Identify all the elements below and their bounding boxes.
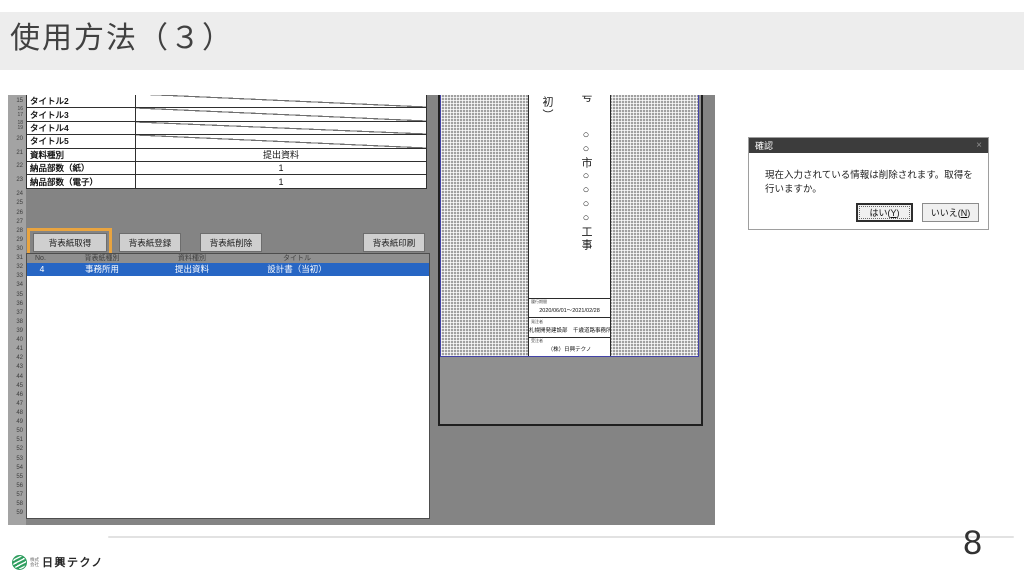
form-row: 資料種別提出資料 (27, 148, 426, 161)
spine-info-box: 受注者（株）日興テクノ (529, 337, 610, 357)
row-number: 25 (8, 199, 23, 208)
row-number: 27 (8, 218, 23, 227)
spine-info-box: 履行期間2020/06/01～2021/02/28 (529, 298, 610, 318)
form-row-label: タイトル4 (27, 122, 136, 134)
slide-title: 使用方法（３） (10, 13, 234, 57)
row-number: 46 (8, 391, 23, 400)
form-row-label: 資料種別 (27, 149, 136, 161)
row-number: 37 (8, 309, 23, 318)
form-row: タイトル4 (27, 121, 426, 134)
row-number: 45 (8, 382, 23, 391)
spine-button-3[interactable]: 背表紙印刷 (363, 233, 425, 252)
list-cell: 提出資料 (147, 263, 237, 276)
spine-button-row: 背表紙取得背表紙登録背表紙削除背表紙印刷 (8, 233, 438, 252)
row-number: 50 (8, 427, 23, 436)
form-row: 納品部数（紙）1 (27, 161, 426, 174)
row-number: 38 (8, 318, 23, 327)
no-button[interactable]: いいえ(N) (922, 203, 979, 222)
row-number: 39 (8, 327, 23, 336)
spine-info-value: （株）日興テクノ (529, 345, 610, 353)
confirm-dialog: 確認 × 現在入力されている情報は削除されます。取得を行いますか。 はい(Y) … (748, 137, 989, 230)
form-row-value[interactable]: 1 (136, 162, 426, 174)
form-row-label: 納品部数（紙） (27, 162, 136, 174)
row-number: 53 (8, 455, 23, 464)
spine-button-1[interactable]: 背表紙登録 (119, 233, 181, 252)
dialog-buttons: はい(Y) いいえ(N) (856, 203, 979, 222)
row-number: 43 (8, 363, 23, 372)
row-number: 44 (8, 373, 23, 382)
form-row-value[interactable] (136, 95, 426, 107)
row-number: 51 (8, 436, 23, 445)
spine-text-number: ○号 (578, 95, 594, 104)
logo-company-prefix: 株式 会社 (30, 557, 39, 567)
spine-bottom-boxes: 履行期間2020/06/01～2021/02/28発注者札幌開発建設部 千歳道路… (529, 298, 610, 357)
page-number: 8 (963, 524, 982, 563)
print-margin-hatch: ○号 ○○市○○○○工事 当初） 履行期間2020/06/01～2021/02/… (440, 95, 699, 357)
logo-globe-icon (12, 555, 27, 570)
row-number-gutter: 1516171819202122232425262728293031323334… (8, 95, 26, 525)
form-row: タイトル5 (27, 134, 426, 147)
dialog-message: 現在入力されている情報は削除されます。取得を行いますか。 (749, 153, 988, 195)
row-number: 36 (8, 300, 23, 309)
list-header-cell: 背表紙種別 (57, 254, 147, 263)
row-number: 52 (8, 445, 23, 454)
company-logo: 株式 会社 日興テクノ (12, 554, 104, 570)
list-header-cell: タイトル (237, 254, 357, 263)
spine-print-preview: ○号 ○○市○○○○工事 当初） 履行期間2020/06/01～2021/02/… (438, 95, 703, 426)
row-number: 58 (8, 500, 23, 509)
row-number: 24 (8, 190, 23, 199)
dialog-title: 確認 (755, 139, 773, 152)
spine-info-label: 履行期間 (531, 299, 547, 305)
form-row-value[interactable] (136, 135, 426, 147)
spine-info-label: 受注者 (531, 338, 543, 344)
close-icon[interactable]: × (976, 141, 982, 151)
list-header-cell: 資料種別 (147, 254, 237, 263)
row-number: 40 (8, 336, 23, 345)
row-number: 57 (8, 491, 23, 500)
row-number: 41 (8, 345, 23, 354)
list-header-cell: No. (27, 254, 57, 263)
row-number: 55 (8, 473, 23, 482)
spine-text-title-tail: 当初） (539, 95, 555, 122)
spine-form-table: タイトル2タイトル3タイトル4タイトル5資料種別提出資料納品部数（紙）1納品部数… (26, 95, 427, 189)
app-screenshot: 1516171819202122232425262728293031323334… (8, 95, 715, 525)
row-number: 33 (8, 272, 23, 281)
spine-strip: ○号 ○○市○○○○工事 当初） 履行期間2020/06/01～2021/02/… (528, 95, 611, 356)
dialog-titlebar: 確認 × (749, 138, 988, 153)
list-cell: 事務所用 (57, 263, 147, 276)
spine-info-value: 2020/06/01～2021/02/28 (529, 306, 610, 314)
spine-info-box: 発注者札幌開発建設部 千歳道路事務所 (529, 317, 610, 337)
footer-divider (108, 536, 1014, 538)
row-number: 35 (8, 291, 23, 300)
row-number: 47 (8, 400, 23, 409)
spine-list-selected-row[interactable]: 4事務所用提出資料設計書（当初） (27, 263, 429, 276)
row-number: 20 (8, 133, 23, 146)
form-row-value[interactable]: 提出資料 (136, 149, 426, 161)
form-row-value[interactable] (136, 122, 426, 134)
spine-info-label: 発注者 (531, 319, 543, 325)
row-number: 49 (8, 418, 23, 427)
spine-button-2[interactable]: 背表紙削除 (200, 233, 262, 252)
spine-button-0[interactable]: 背表紙取得 (33, 233, 107, 252)
row-number: 59 (8, 509, 23, 518)
logo-company-name: 日興テクノ (42, 554, 104, 570)
row-number: 56 (8, 482, 23, 491)
spine-list-header: No.背表紙種別資料種別タイトル (27, 254, 429, 263)
yes-button[interactable]: はい(Y) (856, 203, 913, 222)
row-number: 54 (8, 464, 23, 473)
form-row-label: タイトル5 (27, 135, 136, 147)
row-number: 26 (8, 209, 23, 218)
form-row-label: 納品部数（電子） (27, 175, 136, 187)
row-number: 21 (8, 146, 23, 159)
row-number: 31 (8, 254, 23, 263)
list-cell: 4 (27, 263, 57, 276)
row-number: 22 (8, 160, 23, 173)
spine-info-value: 札幌開発建設部 千歳道路事務所 (529, 326, 610, 334)
row-number: 32 (8, 263, 23, 272)
row-number: 48 (8, 409, 23, 418)
row-number: 1617 (8, 106, 23, 119)
row-number: 42 (8, 354, 23, 363)
form-row: タイトル3 (27, 107, 426, 120)
list-cell: 設計書（当初） (237, 263, 357, 276)
row-number: 34 (8, 281, 23, 290)
row-number: 15 (8, 95, 23, 106)
row-number: 23 (8, 173, 23, 186)
spine-list: No.背表紙種別資料種別タイトル 4事務所用提出資料設計書（当初） (26, 253, 430, 519)
form-row-value[interactable] (136, 108, 426, 120)
form-row-value[interactable]: 1 (136, 175, 426, 187)
spine-text-project: ○○市○○○○工事 (578, 129, 594, 252)
form-row-label: タイトル3 (27, 108, 136, 120)
form-row: タイトル2 (27, 95, 426, 107)
row-number: 1819 (8, 119, 23, 132)
form-row-label: タイトル2 (27, 95, 136, 107)
form-row: 納品部数（電子）1 (27, 174, 426, 187)
